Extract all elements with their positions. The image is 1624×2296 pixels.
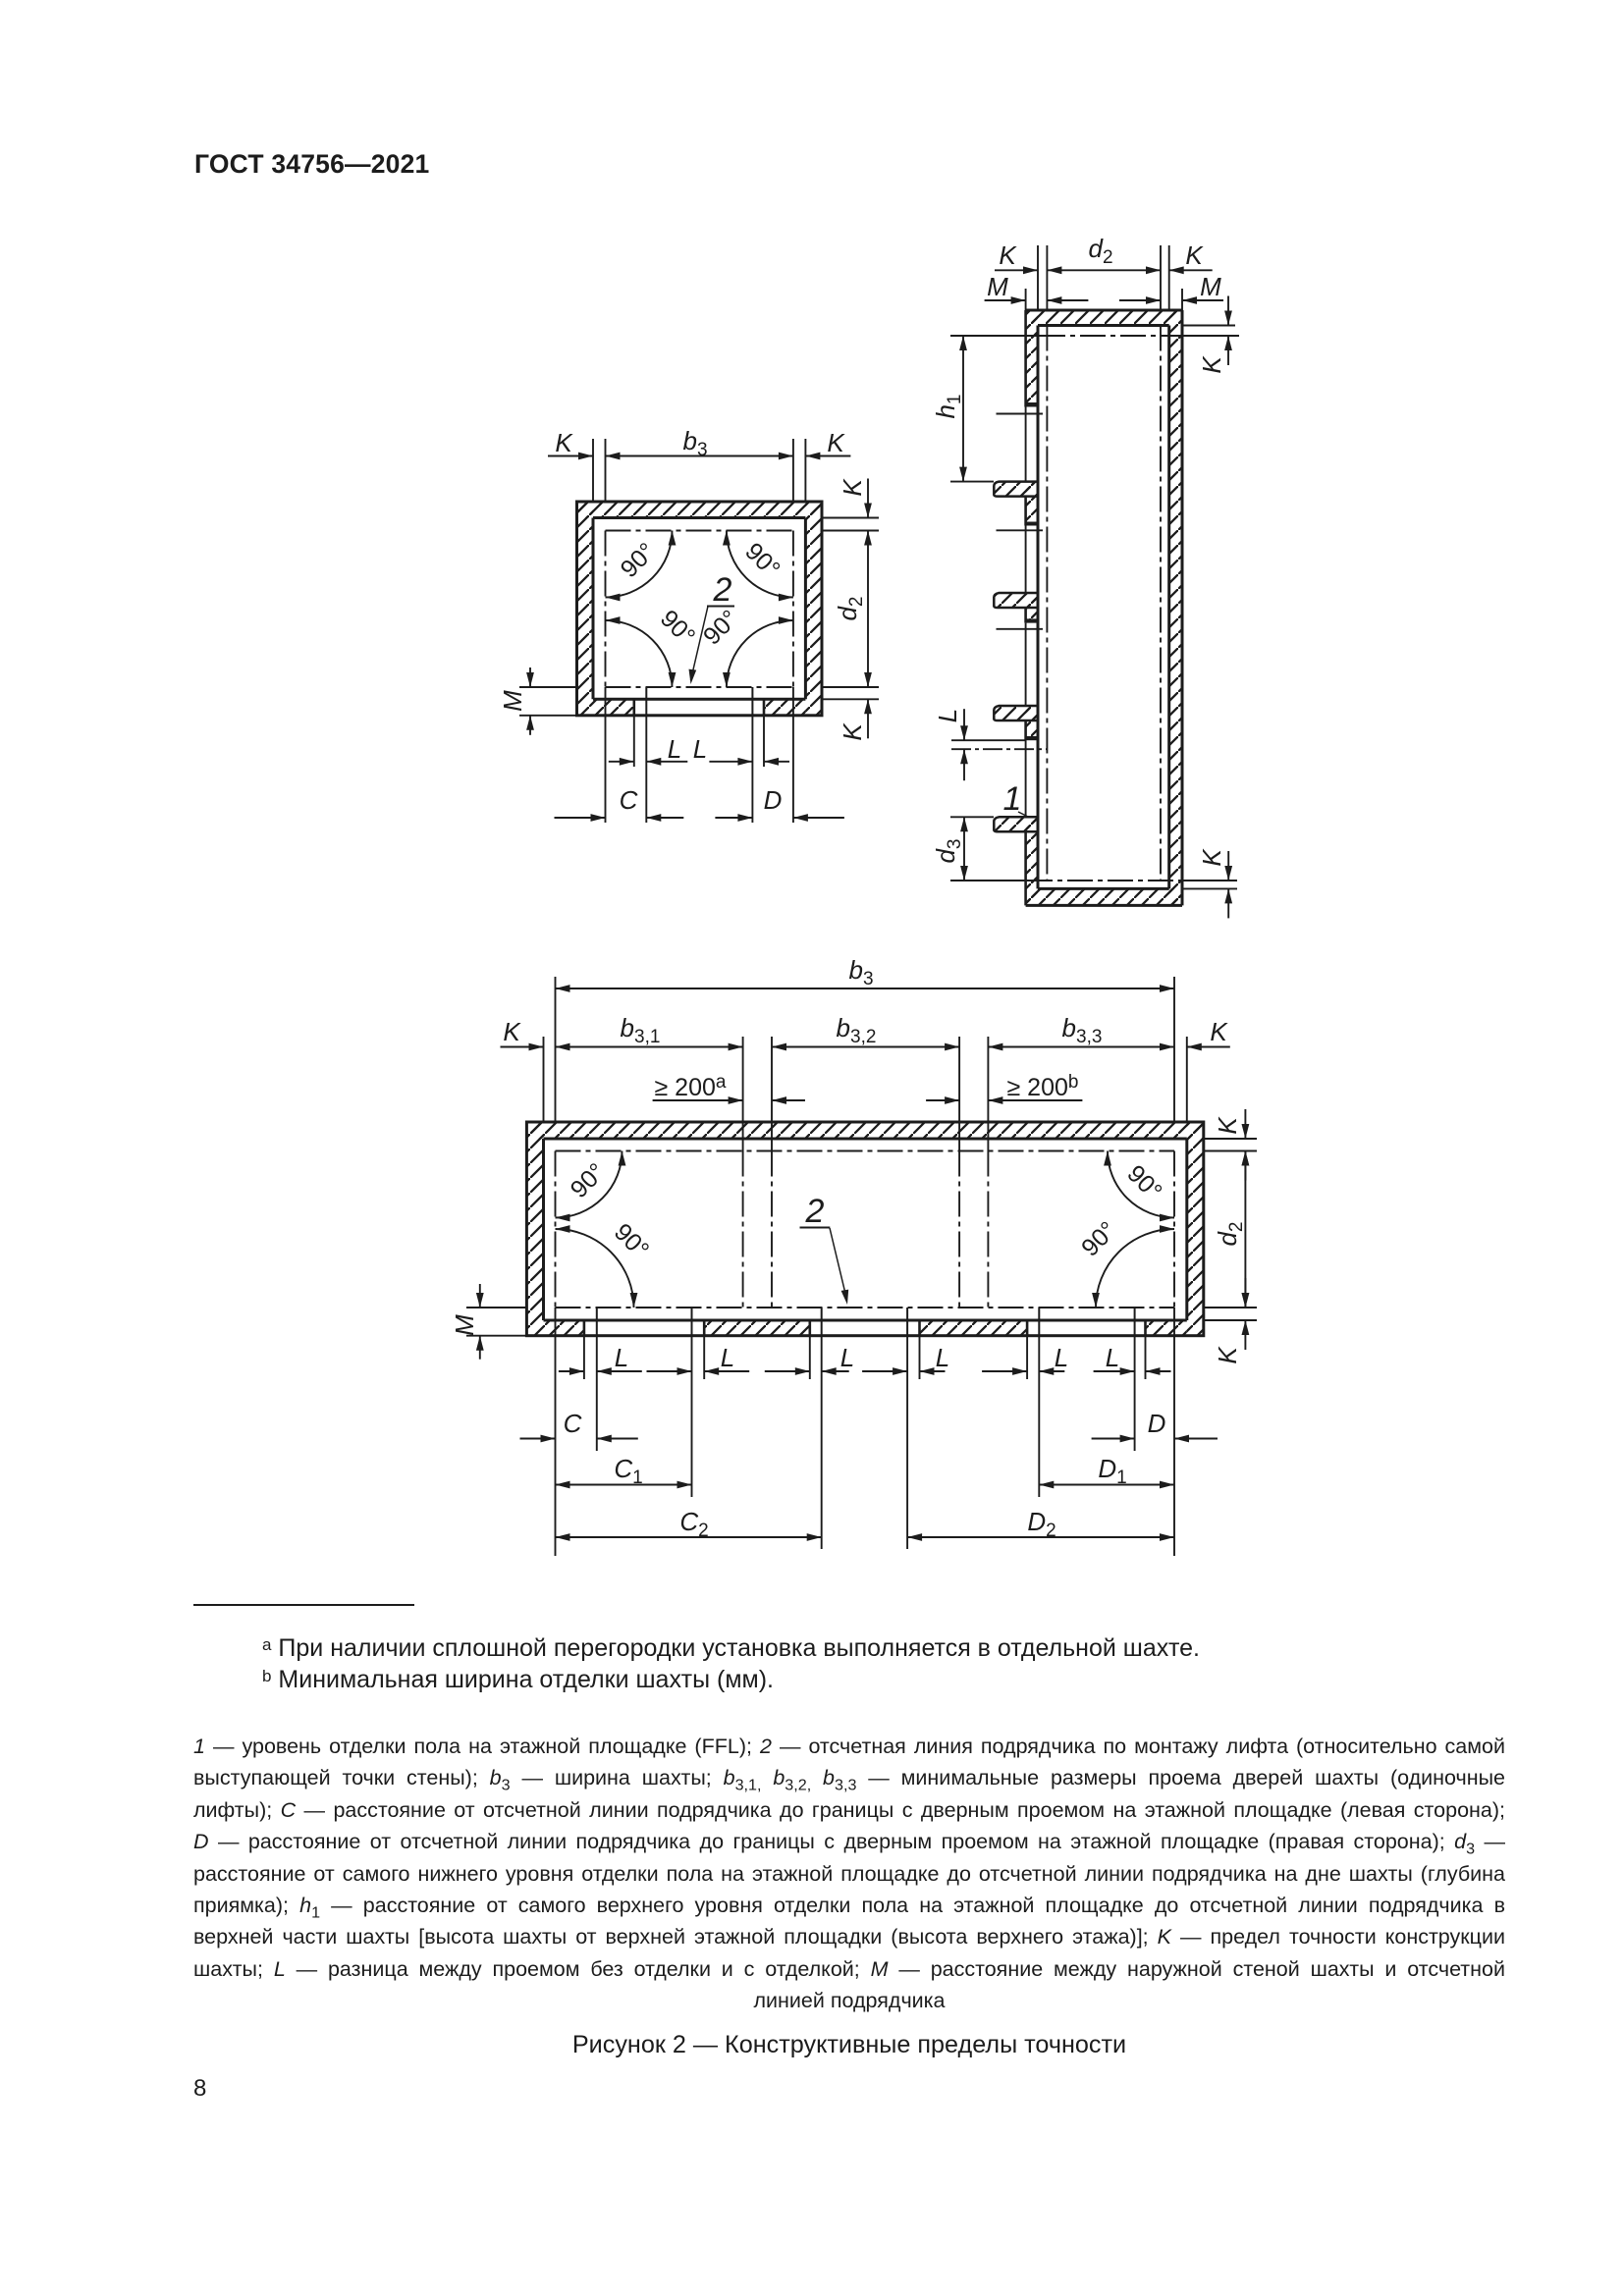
svg-text:M: M bbox=[987, 272, 1008, 301]
svg-text:≥ 200a: ≥ 200a bbox=[655, 1072, 727, 1101]
svg-text:L: L bbox=[1106, 1343, 1119, 1372]
svg-text:90°: 90° bbox=[698, 605, 744, 651]
svg-text:L: L bbox=[615, 1343, 628, 1372]
svg-text:L: L bbox=[1055, 1343, 1068, 1372]
svg-text:h1: h1 bbox=[931, 394, 965, 418]
svg-text:90°: 90° bbox=[655, 605, 701, 651]
svg-text:M: M bbox=[498, 690, 527, 712]
svg-text:d2: d2 bbox=[833, 596, 867, 620]
svg-text:K: K bbox=[1213, 1346, 1242, 1364]
svg-text:d3: d3 bbox=[931, 838, 965, 863]
svg-text:K: K bbox=[827, 428, 845, 457]
svg-text:D2: D2 bbox=[1027, 1507, 1056, 1541]
svg-text:d2: d2 bbox=[1088, 234, 1112, 268]
svg-text:D: D bbox=[1148, 1409, 1166, 1438]
svg-text:C: C bbox=[620, 785, 638, 815]
svg-text:K: K bbox=[555, 428, 573, 457]
svg-text:K: K bbox=[838, 722, 867, 741]
svg-text:K: K bbox=[999, 240, 1017, 270]
svg-text:b3,3: b3,3 bbox=[1062, 1013, 1103, 1047]
svg-text:D1: D1 bbox=[1098, 1454, 1126, 1488]
svg-text:C1: C1 bbox=[614, 1454, 642, 1488]
svg-text:b3: b3 bbox=[848, 955, 873, 989]
svg-text:K: K bbox=[1197, 355, 1226, 374]
svg-text:b3,1: b3,1 bbox=[621, 1013, 661, 1047]
svg-text:2: 2 bbox=[713, 571, 732, 609]
svg-text:b3,2: b3,2 bbox=[837, 1013, 877, 1047]
svg-text:D: D bbox=[764, 785, 783, 815]
svg-text:≥ 200b: ≥ 200b bbox=[1007, 1072, 1079, 1101]
svg-text:2: 2 bbox=[805, 1193, 825, 1230]
svg-text:C2: C2 bbox=[679, 1507, 708, 1541]
svg-text:L: L bbox=[668, 734, 681, 764]
svg-text:K: K bbox=[503, 1017, 521, 1046]
svg-text:K: K bbox=[1185, 240, 1204, 270]
svg-text:K: K bbox=[1213, 1116, 1242, 1135]
svg-text:L: L bbox=[721, 1343, 734, 1372]
svg-text:L: L bbox=[936, 1343, 949, 1372]
svg-text:b3: b3 bbox=[682, 426, 707, 460]
svg-text:M: M bbox=[1200, 272, 1221, 301]
svg-text:L: L bbox=[933, 709, 962, 722]
svg-text:L: L bbox=[693, 734, 707, 764]
svg-text:K: K bbox=[1197, 848, 1226, 867]
svg-text:90°: 90° bbox=[739, 538, 785, 584]
svg-text:L: L bbox=[840, 1343, 854, 1372]
svg-text:d2: d2 bbox=[1213, 1221, 1247, 1246]
svg-text:K: K bbox=[1210, 1017, 1228, 1046]
svg-text:K: K bbox=[838, 478, 867, 497]
svg-text:M: M bbox=[450, 1314, 479, 1336]
svg-text:C: C bbox=[564, 1409, 582, 1438]
